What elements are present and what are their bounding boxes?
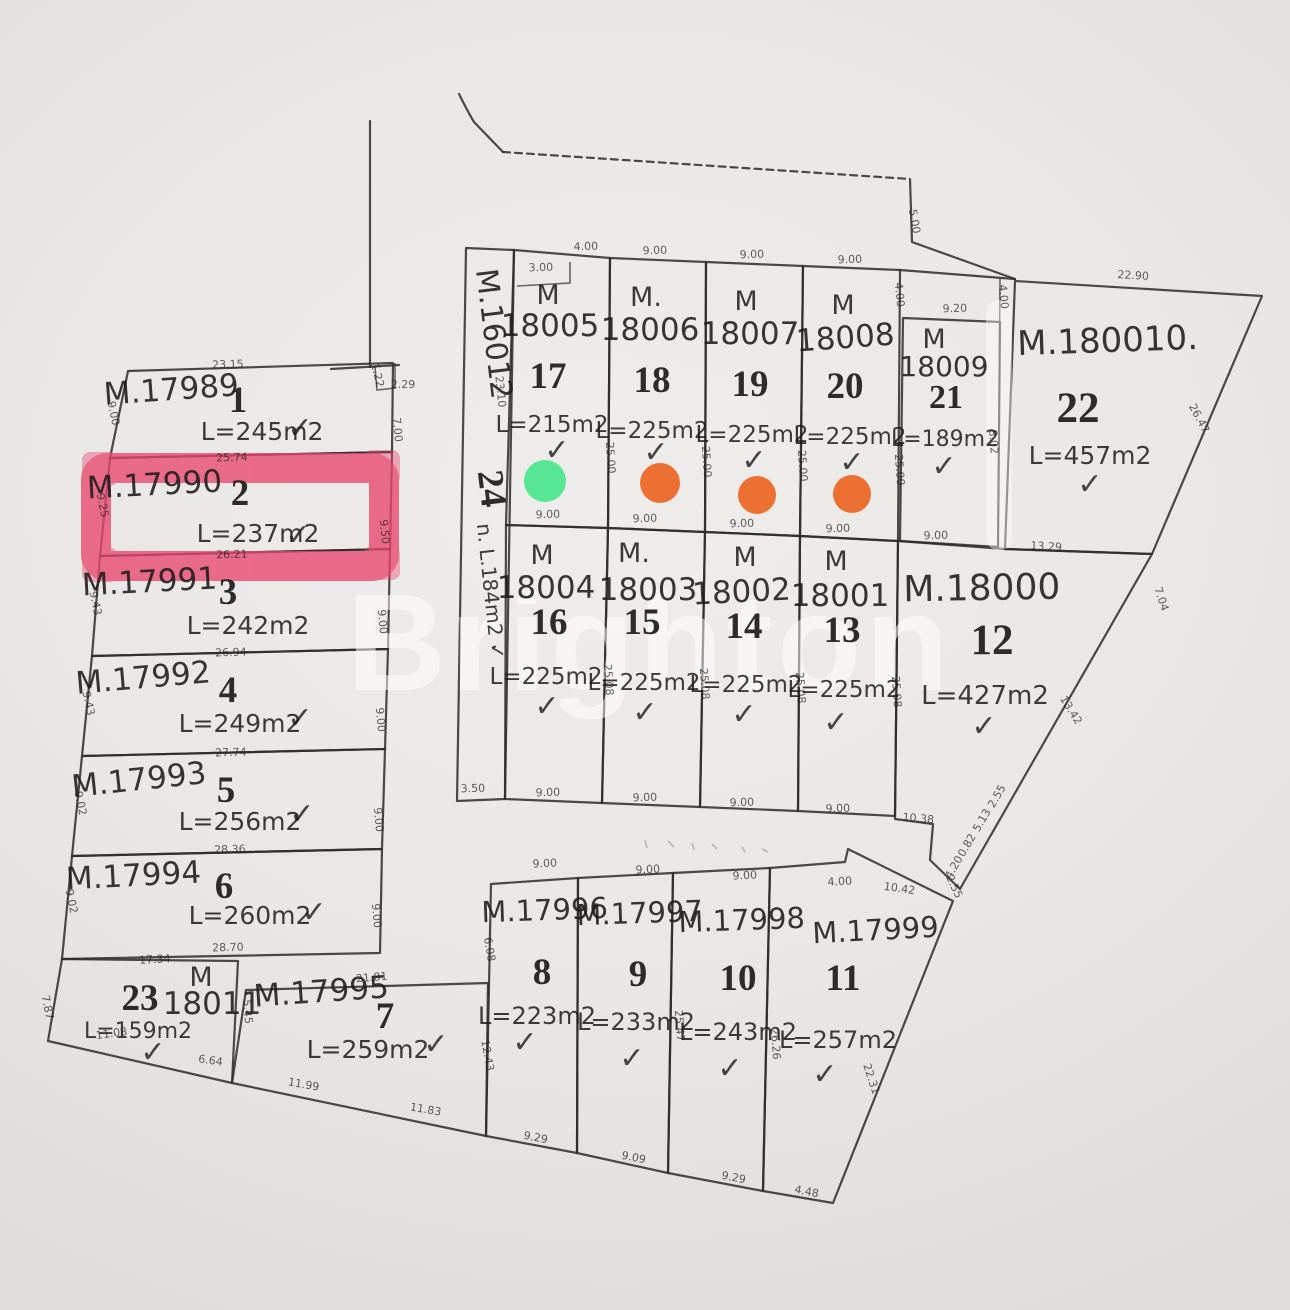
lot-10: M.17998 10 L=243m2 ✓	[678, 901, 806, 1086]
lot-number: 11	[826, 958, 861, 999]
dimension-label: 6.64	[197, 1052, 223, 1068]
dimension-label: 25.08	[793, 672, 808, 704]
lot-number: 24	[469, 468, 514, 510]
check-mark: ✓	[619, 1041, 644, 1076]
dimension-label: 2.55	[943, 873, 965, 901]
dimension-label: 17.34	[139, 952, 171, 967]
dimension-label: 25.08	[697, 668, 712, 700]
lot-cert-prefix: M	[734, 286, 757, 317]
check-mark: ✓	[632, 695, 657, 730]
dimension-label: 9.00	[535, 508, 560, 522]
dimension-label: 23.15	[212, 357, 244, 371]
dimension-label: 22.90	[1117, 268, 1149, 283]
lot-cert-prefix: M.	[618, 538, 650, 569]
dimension-label: 9.00	[732, 868, 757, 882]
lot-1: M.17989 1 L=245m2 ✓	[103, 367, 324, 446]
lot-cert: M.17993	[70, 755, 208, 805]
lot-area: L=242m2	[187, 611, 310, 640]
dimension-label: 26.26	[768, 1028, 783, 1060]
lot-number: 13	[824, 610, 861, 651]
dimension-label: 10.42	[883, 880, 916, 897]
dimension-label: 27.74	[215, 745, 247, 759]
dimension-label: 4.00	[573, 240, 598, 254]
dimension-label: 9.00	[535, 786, 560, 800]
lot-number: 20	[827, 366, 864, 407]
lot-number: 14	[726, 606, 763, 647]
dimension-label: 5.45	[240, 999, 255, 1025]
dimension-label: 4.00	[827, 874, 852, 888]
dimension-label: 25.08	[601, 664, 616, 696]
faint-road-marks	[645, 840, 768, 852]
dimension-label: 9.00	[729, 796, 754, 810]
dimension-label: 9.00	[825, 802, 850, 816]
lot-area: L=457m2	[1029, 441, 1152, 470]
dimension-label: 23.10	[492, 375, 508, 408]
orange-status-dot	[833, 475, 871, 513]
check-mark: ✓	[823, 705, 848, 740]
lot-cert-prefix: M	[824, 546, 847, 577]
watermark-fragment	[986, 300, 1012, 550]
lot-cert: M.18000	[903, 567, 1061, 611]
dimension-label: 25.08	[889, 676, 904, 708]
lot-number: 7	[376, 996, 395, 1037]
check-mark: ✓	[971, 709, 996, 744]
dimension-label: 10.38	[902, 811, 935, 827]
dimension-label: 28.36	[214, 842, 246, 856]
dimension-label: 26.94	[215, 645, 247, 659]
dimension-label: 2.55	[985, 782, 1009, 810]
dimension-label: 25.74	[216, 450, 248, 464]
dimension-label: 8.02	[986, 429, 1001, 454]
highlight-corner	[364, 450, 400, 484]
dimension-label: 21.81	[355, 970, 388, 986]
dimension-label: 22.31	[860, 1062, 882, 1096]
lot-area: L=225m2	[489, 664, 602, 690]
lot-cert: M.17998	[678, 901, 806, 939]
lot-number: 19	[732, 364, 769, 405]
lot-cert: M.17989	[103, 367, 240, 412]
dimension-label: 2.29	[391, 378, 416, 391]
check-mark: ✓	[287, 411, 312, 446]
lot-cert: 18006	[601, 312, 700, 348]
dimension-label: 25.00	[892, 454, 907, 486]
block-top-edge	[900, 270, 1015, 279]
check-mark: ✓	[289, 797, 314, 832]
lot-5: M.17993 5 L=256m2 ✓	[70, 755, 315, 836]
dimension-label: 9.00	[371, 807, 386, 833]
orange-status-dot	[640, 463, 680, 503]
lot-cert: M.17992	[74, 654, 212, 702]
dimension-label: 11.99	[287, 1075, 320, 1093]
lot-21: M 18009 21 L=189m2 ✓	[891, 324, 999, 484]
dimension-label: 11.83	[409, 1100, 442, 1118]
lot-cert-prefix: M	[831, 290, 854, 321]
check-mark: ✓	[140, 1035, 165, 1070]
lot-11: M.17999 11 L=257m2 ✓	[779, 910, 939, 1092]
dimension-label: 7.00	[390, 417, 405, 443]
lot-number: 21	[929, 379, 963, 416]
lot-number: 22	[1057, 385, 1100, 432]
lot-cert-prefix: M	[536, 280, 559, 311]
lot-number: 10	[720, 958, 757, 999]
dimension-label: 9.00	[825, 522, 850, 536]
dimension-label: 9.00	[632, 791, 657, 805]
dimension-label: 0.82	[955, 831, 979, 859]
dimension-label: 9.50	[377, 519, 392, 545]
lot-cert-prefix: M.	[630, 282, 662, 313]
check-mark: ✓	[1077, 467, 1102, 502]
check-mark: ✓	[717, 1051, 742, 1086]
dimension-label: 9.00	[532, 856, 557, 870]
check-mark: ✓	[839, 445, 864, 480]
orange-status-dot	[738, 476, 776, 514]
lot-cert: 18008	[795, 317, 896, 360]
check-mark: ✓	[731, 697, 756, 732]
dimension-label: 25.47	[672, 1010, 687, 1042]
dimension-label: 4.00	[996, 284, 1011, 310]
lot-cert: M.17994	[65, 855, 202, 898]
check-mark: ✓	[812, 1057, 837, 1092]
dimension-label: 25.00	[795, 450, 810, 482]
dimension-label: 9.00	[729, 517, 754, 531]
check-mark: ✓	[534, 689, 559, 724]
check-mark: ✓	[285, 518, 310, 553]
lot-cert: 18001	[791, 578, 890, 614]
lot-number: 23	[122, 978, 159, 1019]
dimension-label: 25.00	[699, 446, 714, 478]
lot-4: M.17992 4 L=249m2 ✓	[74, 654, 312, 738]
dimension-label: 9.00	[923, 529, 948, 543]
dimension-label: 3.50	[460, 782, 485, 796]
lot-number: 2	[231, 473, 250, 514]
dimension-label: 5.13	[970, 806, 994, 834]
dimension-label: 5.00	[906, 208, 923, 234]
lot-number: 17	[530, 356, 567, 397]
dimension-label: 9.00	[369, 903, 384, 929]
lot-23: M 18011 23 L=159m2 ✓	[84, 962, 261, 1070]
lot-number: 4	[219, 670, 238, 711]
dimension-label: 26.21	[216, 547, 248, 561]
dimension-label: 25.00	[603, 442, 618, 474]
dimension-label: 9.00	[373, 707, 388, 733]
lot-number: 9	[629, 954, 648, 995]
dimension-label: 9.20	[942, 302, 967, 316]
dimension-label: 3.00	[528, 261, 553, 275]
dimension-label: 9.00	[837, 253, 862, 267]
boundary-line-dashed	[503, 152, 910, 179]
lot-area: L=260m2	[189, 901, 312, 930]
dimension-label: 28.70	[212, 940, 244, 954]
boundary-line	[459, 94, 503, 152]
lot-area: L=257m2	[779, 1026, 897, 1054]
lot-area: L=249m2	[179, 709, 302, 738]
lot-cert: 18005	[501, 308, 600, 344]
lot-number: 18	[634, 360, 671, 401]
check-mark: ✓	[741, 443, 766, 478]
lot-cert: M.17999	[811, 910, 939, 951]
lot-area: L=427m2	[921, 681, 1049, 711]
dimension-label: 26.47	[1186, 401, 1212, 435]
lot-labels: M.17989 1 L=245m2 ✓ M.17990 2 L=237m2 ✓ …	[65, 267, 1199, 1092]
dimension-label: 12.43	[478, 1039, 496, 1072]
check-mark: ✓	[512, 1025, 537, 1060]
lot-cert: 18004	[497, 570, 596, 606]
lot-cert: M.180010.	[1017, 318, 1199, 364]
scanned-site-plan: Brighton M.17989 1 L=245m2 ✓ M.17990 2 L…	[0, 0, 1290, 1310]
lot-19: M 18007 19 L=225m2 ✓	[695, 286, 808, 514]
lot-number: 16	[531, 602, 568, 643]
check-mark: ✓	[301, 895, 326, 930]
lot-cert: 18007	[701, 316, 800, 352]
lot-area: L=259m2	[307, 1035, 430, 1064]
dimension-label: 7.87	[39, 994, 57, 1021]
lot-7: M.17995 7 L=259m2 ✓	[253, 969, 449, 1064]
dimension-label: 6.08	[481, 936, 498, 962]
dimension-label: 4.00	[892, 282, 907, 308]
lot-number: 8	[533, 952, 552, 993]
lot-cert-prefix: M	[530, 540, 553, 571]
check-mark: ✓	[931, 449, 956, 484]
lot-22: M.180010. 22 L=457m2 ✓	[1017, 318, 1199, 502]
dimension-label: 9.00	[375, 609, 390, 635]
lot-number: 5	[217, 770, 236, 811]
lot-number: 1	[229, 380, 248, 421]
dimension-label: 13.29	[1030, 539, 1062, 554]
dimension-label: 9.00	[642, 244, 667, 258]
dimension-label: 9.00	[739, 248, 764, 262]
check-mark: ✓	[423, 1027, 448, 1062]
dimension-label: 7.04	[1151, 585, 1171, 612]
lot-number: 12	[971, 617, 1014, 664]
check-mark: ✓	[287, 701, 312, 736]
boundary-line	[910, 179, 1015, 279]
lot-number: 3	[219, 572, 238, 613]
lot-6: M.17994 6 L=260m2 ✓	[65, 855, 327, 931]
dimension-label: 9.00	[632, 512, 657, 526]
lot-number: 15	[624, 602, 661, 643]
green-status-dot	[524, 460, 566, 502]
lot-cert-prefix: M	[733, 542, 756, 573]
lot-area: L=256m2	[179, 807, 302, 836]
dimension-label: 9.00	[635, 862, 660, 876]
site-plan-drawing: Brighton M.17989 1 L=245m2 ✓ M.17990 2 L…	[0, 0, 1290, 1310]
